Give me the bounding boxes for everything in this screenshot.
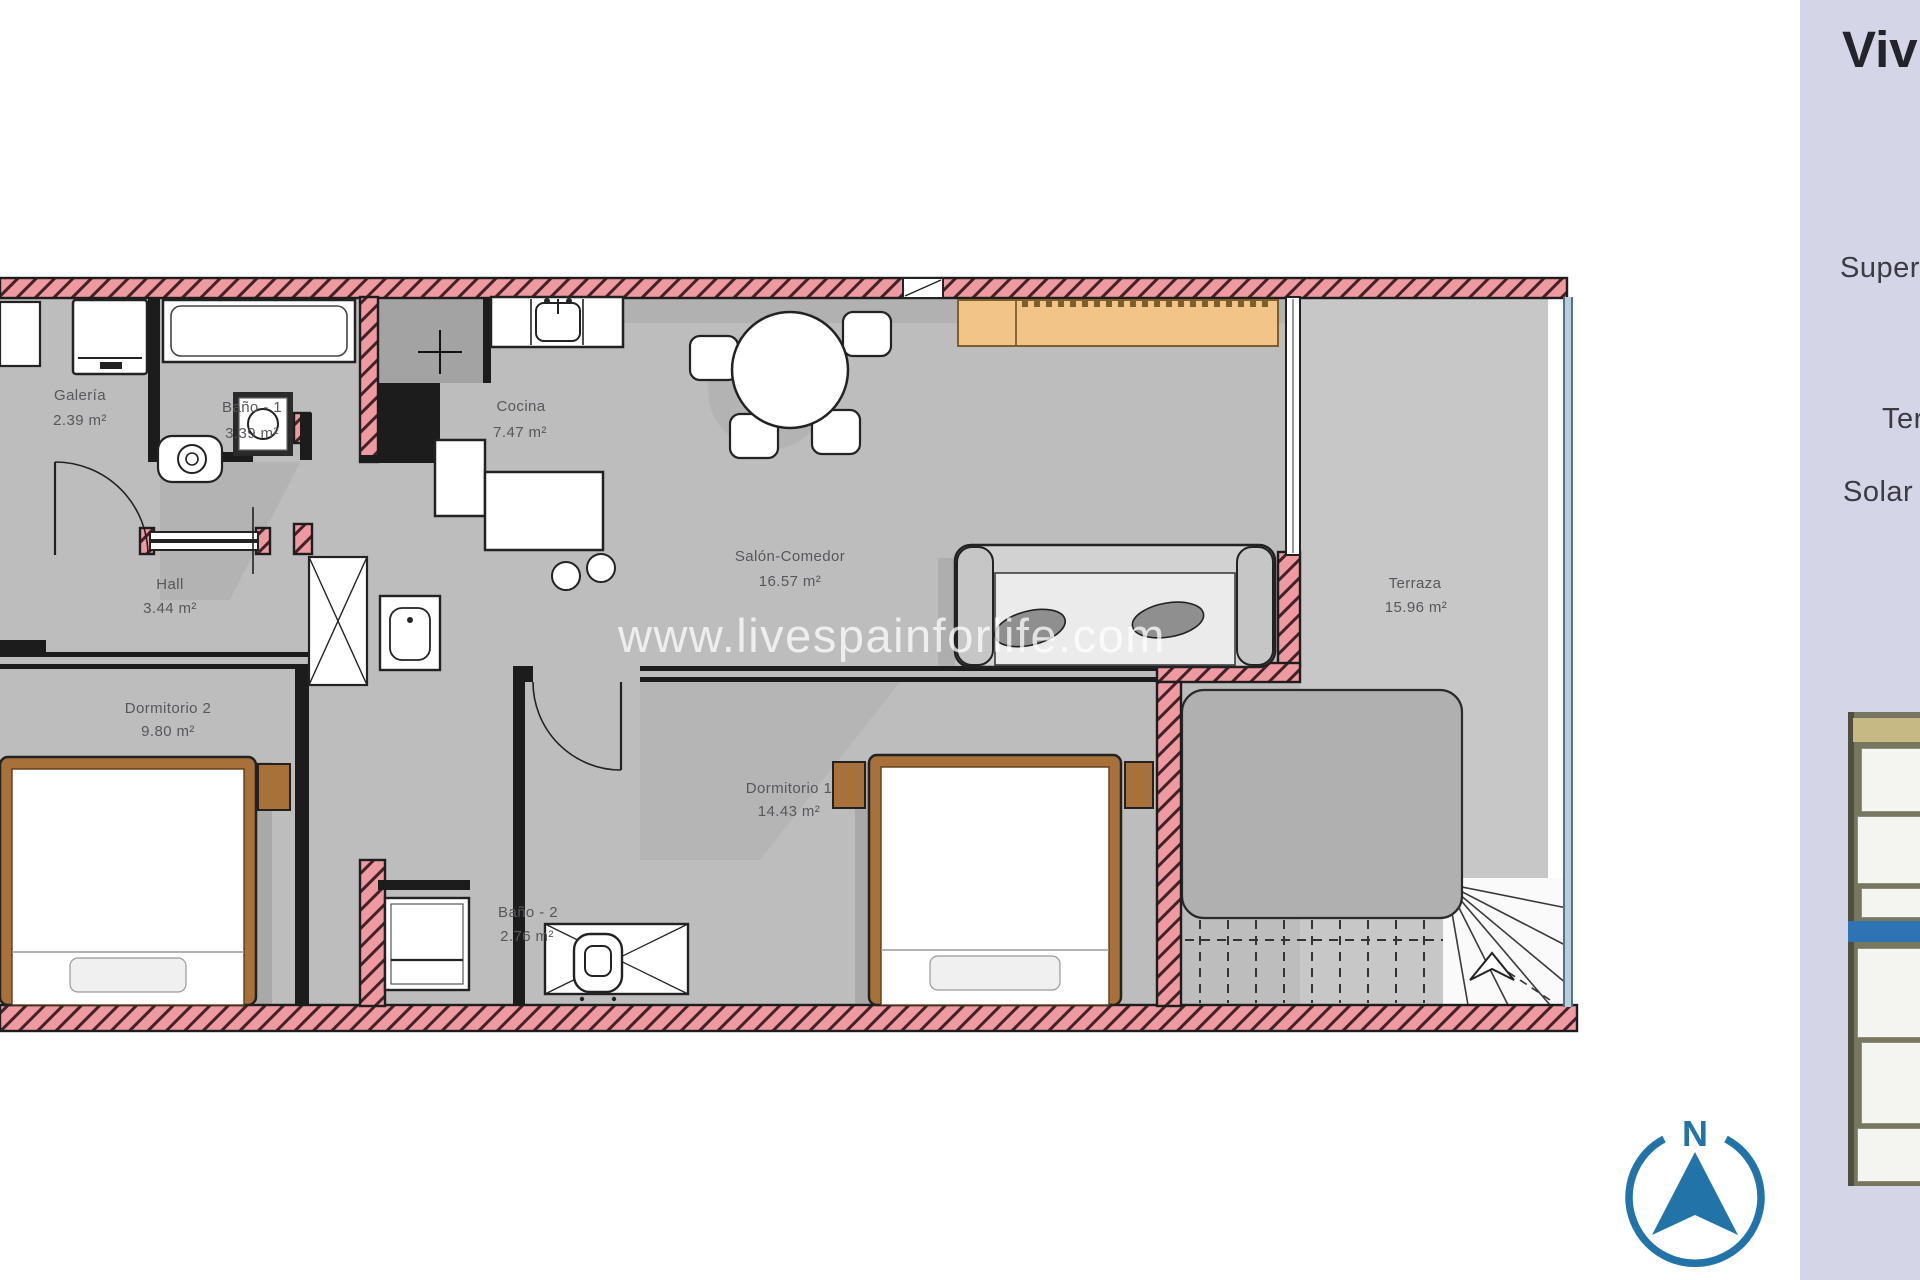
- nightstand: [258, 764, 290, 810]
- nightstand: [833, 762, 865, 808]
- wardrobe: [309, 557, 367, 685]
- room-label-dorm-2: Dormitorio 2: [125, 700, 212, 717]
- stool: [552, 562, 580, 590]
- thumbnail-road-strip: [1853, 718, 1920, 742]
- room-area-terraza: 15.96 m²: [1385, 599, 1447, 616]
- room-label-galeria: Galería: [54, 387, 106, 404]
- sideboard: [958, 300, 1278, 346]
- thumbnail-building-block: [1861, 888, 1920, 918]
- terrace-platform: [1182, 690, 1462, 918]
- room-label-cocina: Cocina: [496, 398, 545, 415]
- room-area-hall: 3.44 m²: [143, 600, 197, 617]
- kitchen-counter: [491, 297, 623, 347]
- bed-dormitorio-1: [833, 755, 1153, 1005]
- site-plan-thumbnail: [1848, 712, 1920, 1186]
- sidebar-label-superficie: Super: [1840, 252, 1920, 285]
- room-area-dorm-1: 14.43 m²: [758, 803, 820, 820]
- vanity-bano-2: [380, 596, 440, 670]
- compass-arrow-icon: [1652, 1152, 1738, 1235]
- room-area-bano-1: 3.39 m²: [225, 425, 279, 442]
- room-label-salon: Salón-Comedor: [735, 548, 845, 565]
- thumbnail-building-block: [1857, 816, 1920, 884]
- service-shaft: [378, 383, 440, 463]
- room-label-hall: Hall: [156, 576, 183, 593]
- sidebar-title: Vivi: [1842, 20, 1920, 79]
- stool: [587, 554, 615, 582]
- room-area-salon: 16.57 m²: [759, 573, 821, 590]
- toilet-bano-1: [158, 436, 222, 482]
- bed-dormitorio-2: [0, 757, 290, 1005]
- room-label-bano-2: Baño - 2: [498, 904, 558, 921]
- sidebar-label-solarium: Solar: [1843, 476, 1913, 509]
- wall-top: [0, 278, 1567, 298]
- room-label-terraza: Terraza: [1389, 575, 1442, 592]
- room-area-galeria: 2.39 m²: [53, 412, 107, 429]
- room-area-bano-2: 2.76 m²: [500, 928, 554, 945]
- nightstand: [1125, 762, 1153, 808]
- north-compass: N: [1629, 1113, 1761, 1263]
- sidebar-panel: Vivi Super Ter Solar: [1800, 0, 1920, 1280]
- room-area-cocina: 7.47 m²: [493, 424, 547, 441]
- thumbnail-edge: [1848, 712, 1854, 1186]
- thumbnail-building-block: [1857, 948, 1920, 1038]
- page: { "watermark": { "text": "www.livespainf…: [0, 0, 1920, 1280]
- room-area-dorm-2: 9.80 m²: [141, 723, 195, 740]
- room-label-bano-1: Baño - 1: [222, 399, 282, 416]
- watermark: www.livespainforlife.com: [618, 608, 1166, 663]
- dining-table: [732, 312, 848, 428]
- thumbnail-building-block: [1857, 1128, 1920, 1182]
- thumbnail-building-block: [1861, 1042, 1920, 1124]
- thumbnail-highlight-band: [1848, 921, 1920, 942]
- bathtub: [163, 300, 355, 362]
- wall-bottom: [0, 1005, 1577, 1031]
- room-label-dorm-1: Dormitorio 1: [746, 780, 833, 797]
- shower-bano-2: [385, 898, 469, 990]
- thumbnail-building-block: [1861, 748, 1920, 812]
- sidebar-label-terraza: Ter: [1882, 403, 1920, 436]
- compass-north-label: N: [1682, 1113, 1708, 1154]
